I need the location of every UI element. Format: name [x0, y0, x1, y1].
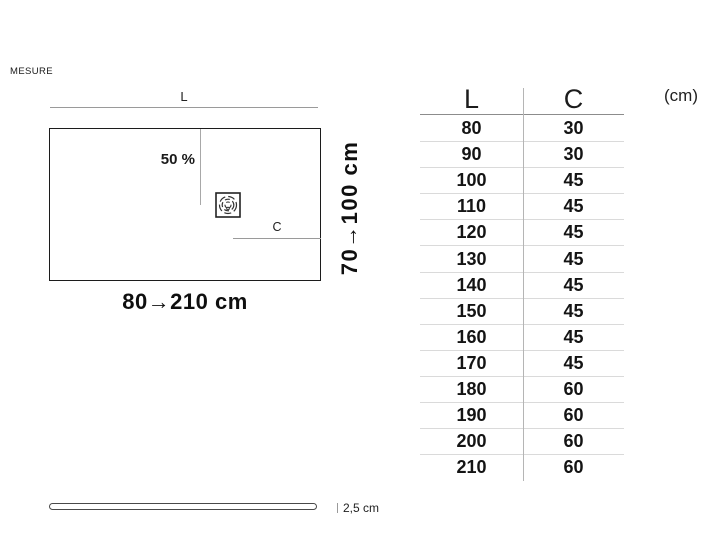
table-row: 20060 — [420, 428, 624, 454]
size-table-body: 8030903010045110451204513045140451504516… — [420, 115, 624, 480]
table-row: 16045 — [420, 324, 624, 350]
cell-c-value: 30 — [523, 144, 624, 165]
table-row: 11045 — [420, 193, 624, 219]
cell-c-value: 60 — [523, 379, 624, 400]
cell-c-value: 60 — [523, 431, 624, 452]
channel-dimension-label: C — [233, 220, 321, 234]
table-row: 14045 — [420, 272, 624, 298]
cell-l-value: 190 — [420, 405, 523, 426]
cell-c-value: 45 — [523, 275, 624, 296]
cell-c-value: 60 — [523, 457, 624, 478]
cell-c-value: 45 — [523, 301, 624, 322]
size-table-header: L C — [420, 84, 624, 115]
unit-label: (cm) — [664, 86, 698, 106]
column-header-l: L — [420, 84, 523, 114]
table-row: 21060 — [420, 454, 624, 480]
cell-l-value: 140 — [420, 275, 523, 296]
cell-c-value: 45 — [523, 196, 624, 217]
cell-c-value: 30 — [523, 118, 624, 139]
channel-dimension-line — [233, 238, 321, 239]
tray-side-profile — [49, 503, 317, 510]
measurement-sheet: MESURE L 50 % C 80→210 cm 70→100 cm L C … — [0, 0, 720, 540]
cell-l-value: 100 — [420, 170, 523, 191]
cell-l-value: 200 — [420, 431, 523, 452]
cell-c-value: 45 — [523, 249, 624, 270]
page-title: MESURE — [10, 66, 53, 77]
column-divider-line — [523, 88, 524, 481]
table-row: 10045 — [420, 167, 624, 193]
cell-l-value: 80 — [420, 118, 523, 139]
slope-percent-label: 50 % — [143, 151, 195, 168]
table-row: 8030 — [420, 115, 624, 141]
slope-reference-line — [200, 129, 201, 205]
cell-l-value: 160 — [420, 327, 523, 348]
width-range-label: 70→100 cm — [337, 108, 363, 308]
table-row: 12045 — [420, 219, 624, 245]
cell-c-value: 45 — [523, 327, 624, 348]
cell-c-value: 45 — [523, 222, 624, 243]
cell-l-value: 120 — [420, 222, 523, 243]
table-row: 18060 — [420, 376, 624, 402]
length-dimension-line — [50, 107, 318, 108]
cell-l-value: 130 — [420, 249, 523, 270]
length-dimension-label: L — [50, 89, 318, 104]
table-row: 13045 — [420, 245, 624, 271]
table-row: 17045 — [420, 350, 624, 376]
length-range-label: 80→210 cm — [49, 289, 321, 315]
size-table: L C 803090301004511045120451304514045150… — [420, 84, 624, 480]
cell-l-value: 110 — [420, 196, 523, 217]
cell-c-value: 45 — [523, 170, 624, 191]
column-header-c: C — [523, 84, 624, 114]
cell-l-value: 170 — [420, 353, 523, 374]
cell-l-value: 210 — [420, 457, 523, 478]
drain-icon — [215, 192, 241, 218]
cell-c-value: 45 — [523, 353, 624, 374]
cell-l-value: 90 — [420, 144, 523, 165]
cell-c-value: 60 — [523, 405, 624, 426]
cell-l-value: 180 — [420, 379, 523, 400]
thickness-label: 2,5 cm — [343, 501, 379, 515]
cell-l-value: 150 — [420, 301, 523, 322]
thickness-tick — [337, 503, 338, 513]
table-row: 15045 — [420, 298, 624, 324]
table-row: 9030 — [420, 141, 624, 167]
table-row: 19060 — [420, 402, 624, 428]
